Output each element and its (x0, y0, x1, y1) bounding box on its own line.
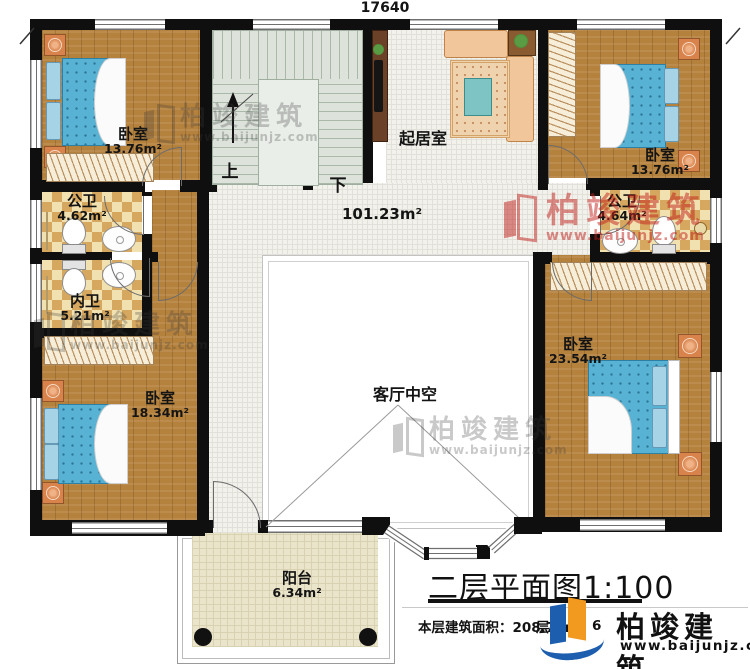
floor-area-label: 本层建筑面积： (418, 620, 513, 636)
tv-icon (374, 60, 383, 112)
stair-flight-right (317, 79, 362, 184)
wall-bedroom-tr-bottom-b (586, 178, 712, 190)
stair-landing (258, 79, 319, 186)
window-bottom-bl (72, 522, 167, 534)
company-url-text: www.baijunjz.com (620, 638, 750, 654)
pillow (44, 408, 59, 444)
wall-bedroom-tr-bottom-a (538, 178, 548, 190)
wall-balcony-corner (362, 517, 390, 535)
bed-blanket (600, 64, 630, 148)
bed-headboard (668, 360, 680, 454)
wall-bedroom-br-left (533, 252, 545, 517)
closet (548, 32, 576, 137)
bedroom-bl-label: 卧室 18.34m² (115, 390, 205, 420)
window-left-1 (30, 60, 42, 148)
bedroom-tl-label: 卧室 13.76m² (88, 126, 178, 156)
pillow (664, 106, 679, 142)
bath-right-public-label: 公卫 4.64m² (577, 193, 667, 223)
void-label: 客厅中空 (350, 386, 460, 403)
wall-bathl-right-b (142, 234, 152, 260)
window-left-4 (30, 398, 42, 490)
pillow (46, 102, 61, 140)
nightstand (42, 482, 64, 504)
window-top-4 (577, 19, 665, 30)
floor-plan: 17640 15320 (0, 0, 750, 669)
nightstand (678, 452, 702, 476)
window-right-1 (710, 198, 722, 243)
wall-right (710, 19, 722, 532)
wall-bl-strip-top (152, 252, 158, 262)
bedroom-br-label: 卧室 23.54m² (533, 336, 623, 366)
pillow (44, 444, 59, 480)
bedroom-tr-label: 卧室 13.76m² (615, 147, 705, 177)
nightstand (44, 34, 66, 56)
stair-flight-top (213, 31, 362, 79)
wall-balcony-top-a (205, 520, 213, 533)
wall-bl-strip-right (197, 190, 209, 520)
nightstand (678, 38, 700, 60)
balcony-label: 阳台 6.34m² (252, 570, 342, 600)
toilet-tank (652, 244, 676, 254)
company-logo-icon (540, 597, 606, 657)
shower-head-icon (694, 222, 707, 235)
plant-icon (373, 44, 384, 55)
title-underline (428, 599, 642, 603)
stairs-up-label: 上 (218, 163, 242, 181)
balcony-column-right (359, 628, 377, 646)
wall-living-bedroomtr (538, 19, 548, 190)
window-right-2 (710, 372, 722, 442)
sofa (444, 30, 508, 58)
wall-bedroom-tl-right (200, 19, 212, 180)
window-bottom-br (580, 519, 665, 531)
closet (46, 153, 154, 182)
stairs-down-label: 下 (326, 177, 350, 195)
dimension-top: 17640 (340, 0, 430, 16)
bath-left-public-label: 公卫 4.62m² (37, 193, 127, 223)
plant-icon (514, 34, 528, 48)
coffee-table (464, 78, 492, 116)
closet (44, 336, 154, 365)
pillow (652, 408, 667, 448)
window-top-3 (410, 19, 498, 30)
balcony-column-left (194, 628, 212, 646)
bath-inner-label: 内卫 5.21m² (40, 293, 130, 323)
pillow (652, 366, 667, 406)
toilet-tank (62, 244, 86, 254)
window-balcony (268, 520, 362, 533)
window-top-1 (95, 19, 165, 30)
company-brand-text: 柏竣建筑 (616, 604, 750, 669)
hall-area-label: 101.23m² (332, 206, 432, 222)
sofa (506, 56, 534, 142)
nightstand (678, 334, 702, 358)
window-top-2 (253, 19, 330, 30)
living-label: 起居室 (378, 130, 468, 147)
pillow (664, 68, 679, 104)
pillow (46, 62, 61, 100)
nightstand (42, 380, 64, 402)
